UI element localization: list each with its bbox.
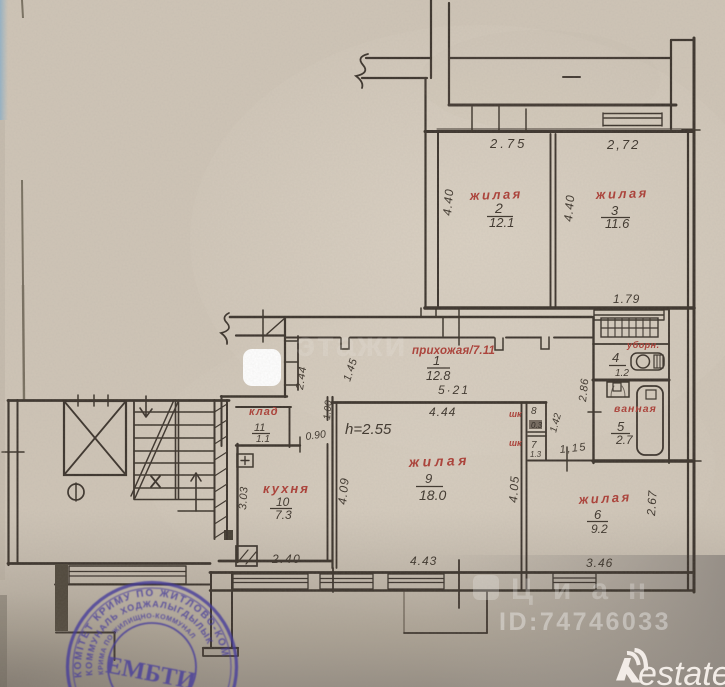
svg-text:estate: estate [638,655,725,687]
